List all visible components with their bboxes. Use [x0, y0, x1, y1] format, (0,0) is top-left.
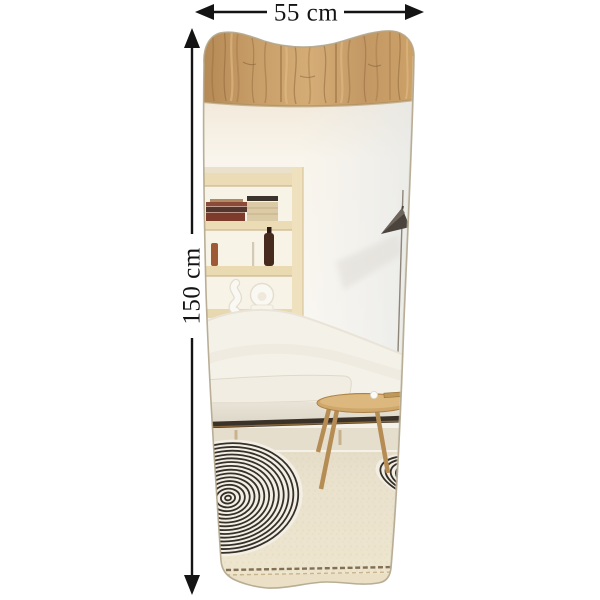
- width-arrow-right-head-icon: [405, 4, 424, 20]
- height-dimension-label: 150 cm: [179, 247, 206, 324]
- height-arrow-bottom-head-icon: [184, 575, 200, 595]
- width-arrow-left-head-icon: [195, 4, 214, 20]
- shelf-niche: [204, 167, 303, 319]
- shelf-3: [204, 266, 292, 276]
- shelf-2: [204, 221, 292, 230]
- shelf-1: [204, 173, 292, 186]
- niche-right-frame: [292, 167, 303, 319]
- height-dimension: 150 cm: [179, 28, 206, 595]
- wood-ceiling: [204, 28, 416, 106]
- table-decor-cup: [370, 391, 377, 398]
- width-dimension: 55 cm: [195, 0, 424, 27]
- books: [206, 196, 278, 221]
- product-image: 55 cm 150 cm: [0, 0, 600, 600]
- mirror-dimension-figure: 55 cm 150 cm: [0, 0, 600, 600]
- width-dimension-label: 55 cm: [274, 0, 338, 27]
